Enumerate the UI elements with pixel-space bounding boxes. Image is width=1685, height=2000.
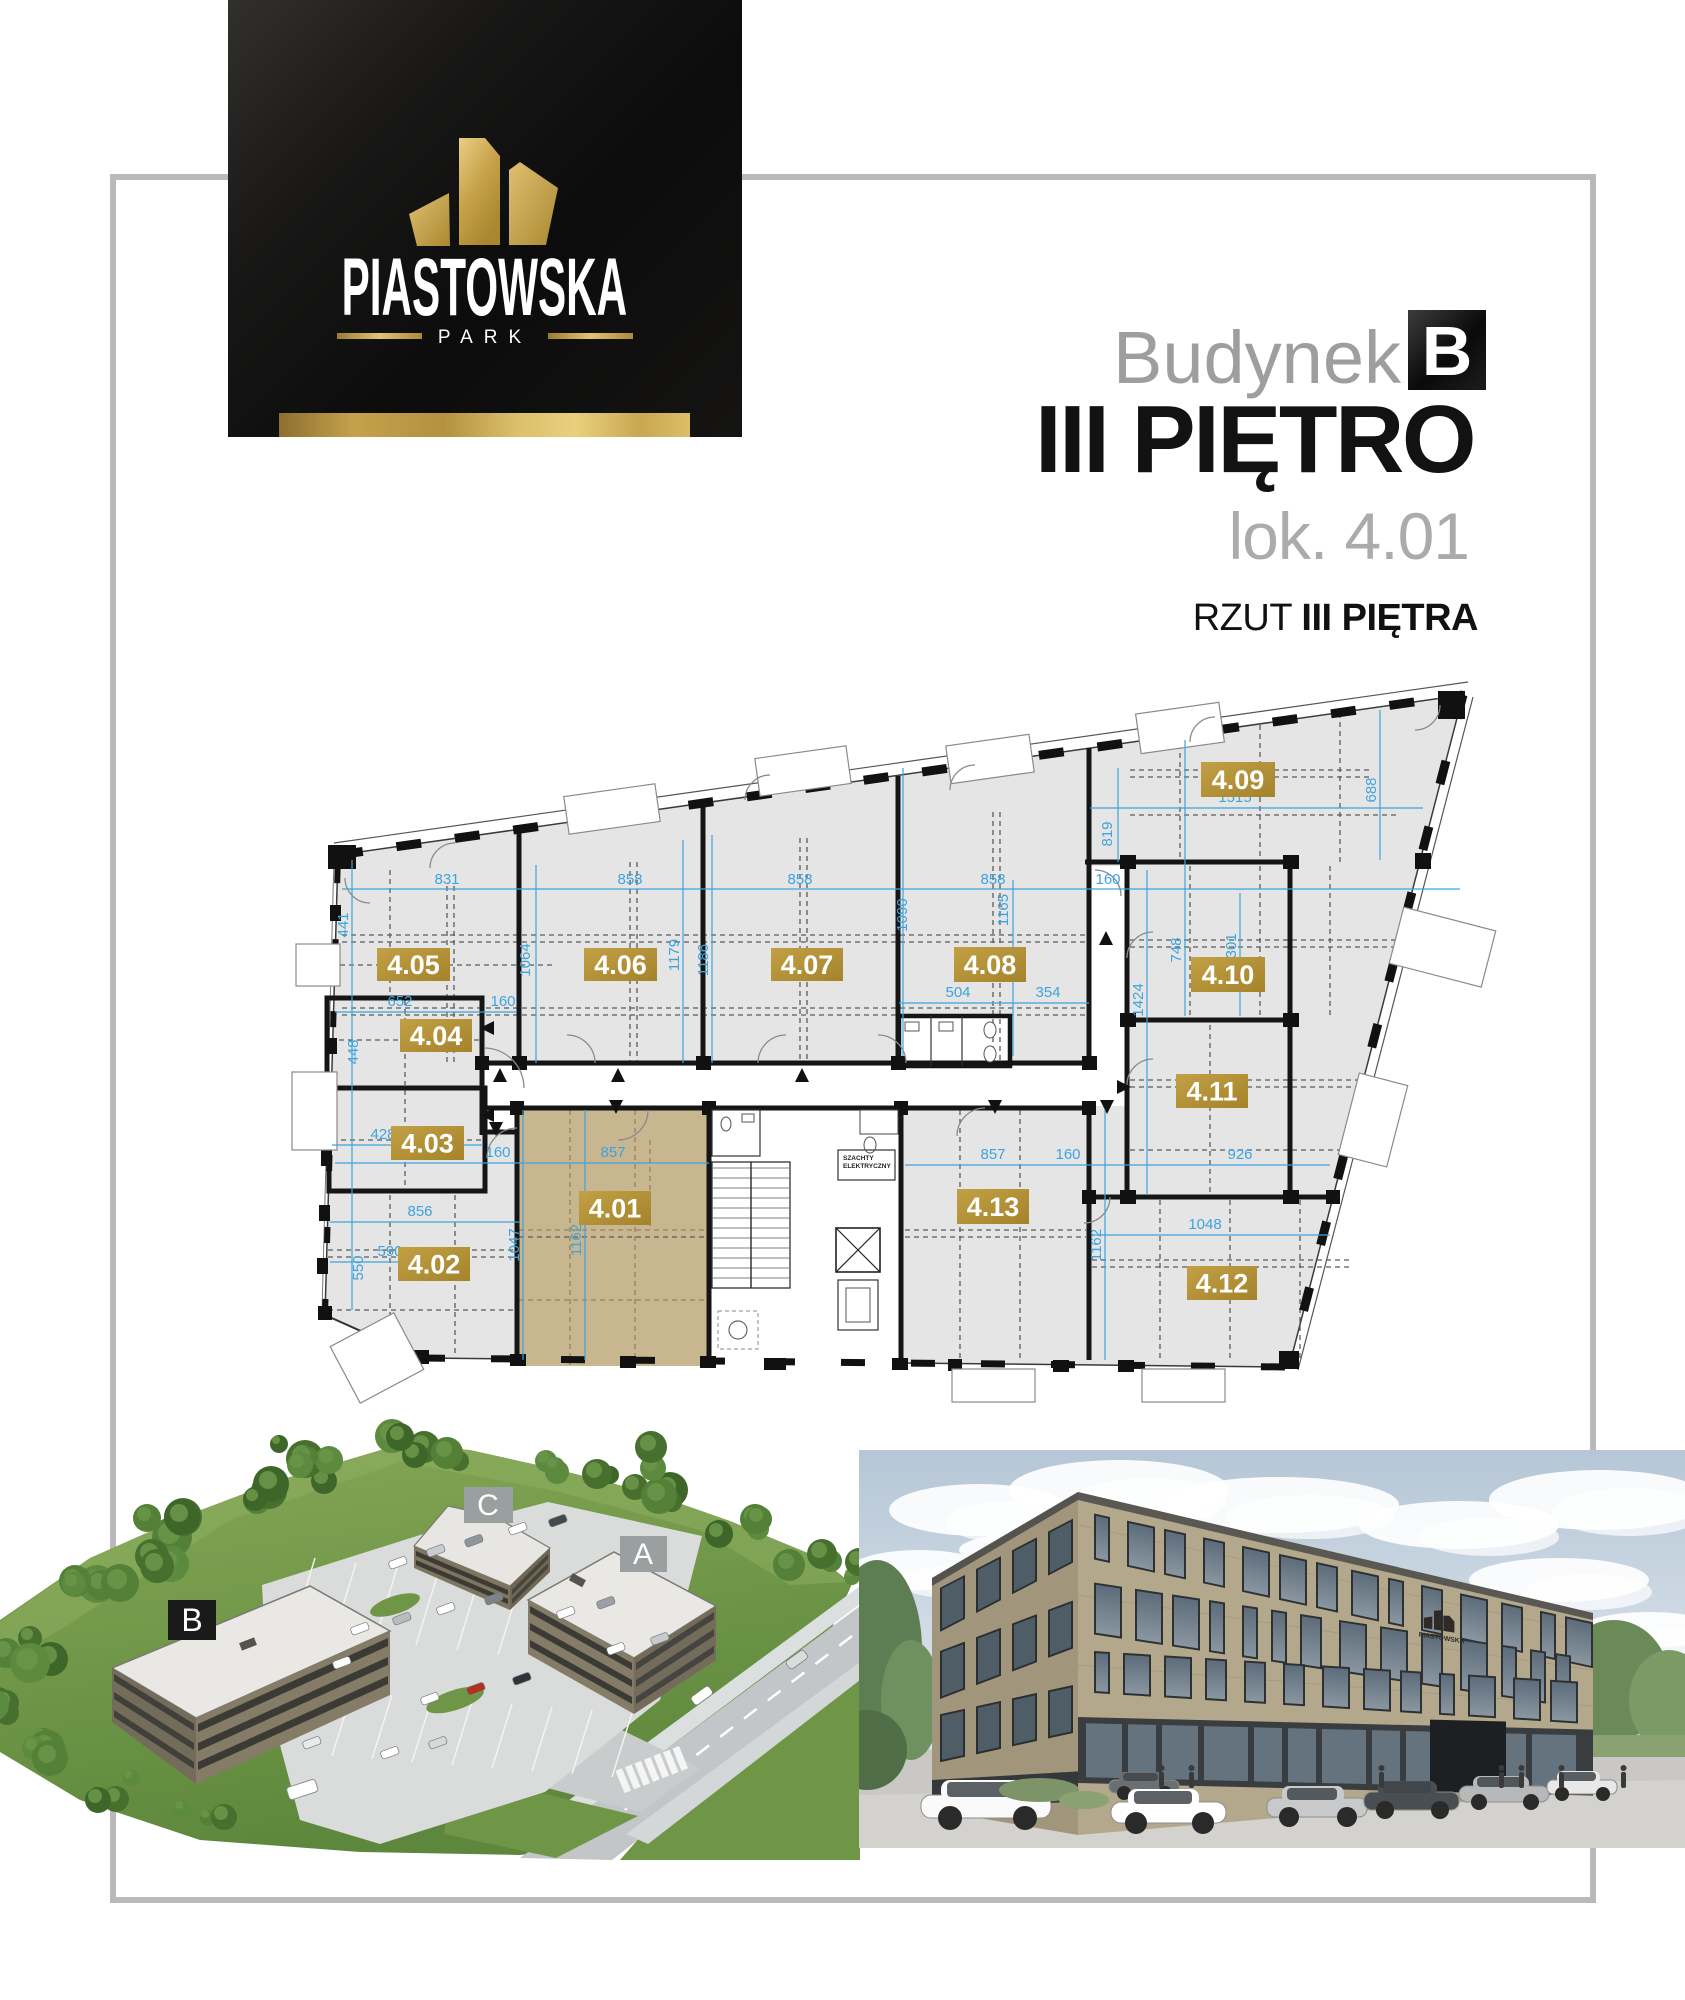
svg-text:4.06: 4.06 (594, 950, 647, 980)
svg-text:1179: 1179 (666, 939, 683, 971)
svg-text:831: 831 (434, 871, 459, 888)
svg-text:354: 354 (1035, 984, 1060, 1001)
svg-text:441: 441 (335, 912, 352, 937)
svg-text:C: C (477, 1489, 499, 1522)
svg-text:448: 448 (345, 1039, 362, 1064)
svg-text:B: B (181, 1602, 202, 1638)
svg-text:857: 857 (980, 1146, 1005, 1163)
svg-text:926: 926 (1227, 1146, 1252, 1163)
svg-text:160: 160 (490, 993, 515, 1010)
svg-text:160: 160 (1095, 871, 1120, 888)
svg-text:160: 160 (1055, 1146, 1080, 1163)
svg-text:857: 857 (600, 1144, 625, 1161)
svg-text:A: A (633, 1538, 653, 1571)
svg-text:1048: 1048 (1188, 1216, 1221, 1233)
svg-text:4.12: 4.12 (1196, 1269, 1249, 1299)
svg-text:1162: 1162 (1088, 1229, 1105, 1261)
svg-text:748: 748 (1168, 937, 1185, 962)
svg-text:4.07: 4.07 (781, 950, 834, 980)
svg-text:858: 858 (980, 871, 1005, 888)
svg-text:652: 652 (387, 993, 412, 1010)
svg-text:856: 856 (407, 1203, 432, 1220)
svg-text:4.09: 4.09 (1212, 765, 1265, 795)
svg-text:4.11: 4.11 (1186, 1077, 1237, 1107)
svg-text:160: 160 (485, 1144, 510, 1161)
svg-text:1090: 1090 (894, 898, 911, 931)
svg-text:4.05: 4.05 (387, 950, 440, 980)
svg-text:688: 688 (1363, 777, 1380, 802)
svg-text:4.10: 4.10 (1202, 960, 1255, 990)
svg-text:4.02: 4.02 (408, 1250, 461, 1280)
svg-text:4.01: 4.01 (589, 1194, 642, 1224)
svg-text:858: 858 (787, 871, 812, 888)
svg-text:1165: 1165 (995, 894, 1012, 926)
svg-text:ELEKTRYCZNY: ELEKTRYCZNY (843, 1163, 891, 1170)
svg-text:1424: 1424 (1130, 983, 1147, 1016)
svg-text:1047: 1047 (506, 1228, 523, 1261)
svg-text:858: 858 (617, 871, 642, 888)
svg-text:504: 504 (945, 984, 970, 1001)
svg-text:1186: 1186 (695, 944, 712, 976)
svg-text:4.03: 4.03 (401, 1129, 454, 1159)
svg-text:819: 819 (1099, 821, 1116, 846)
svg-text:4.04: 4.04 (410, 1021, 463, 1051)
svg-text:SZACHTY: SZACHTY (843, 1155, 874, 1162)
svg-text:550: 550 (350, 1255, 367, 1280)
svg-text:4.08: 4.08 (964, 950, 1017, 980)
svg-text:1064: 1064 (517, 943, 534, 976)
svg-text:4.13: 4.13 (967, 1192, 1020, 1222)
svg-text:1162: 1162 (568, 1224, 585, 1256)
